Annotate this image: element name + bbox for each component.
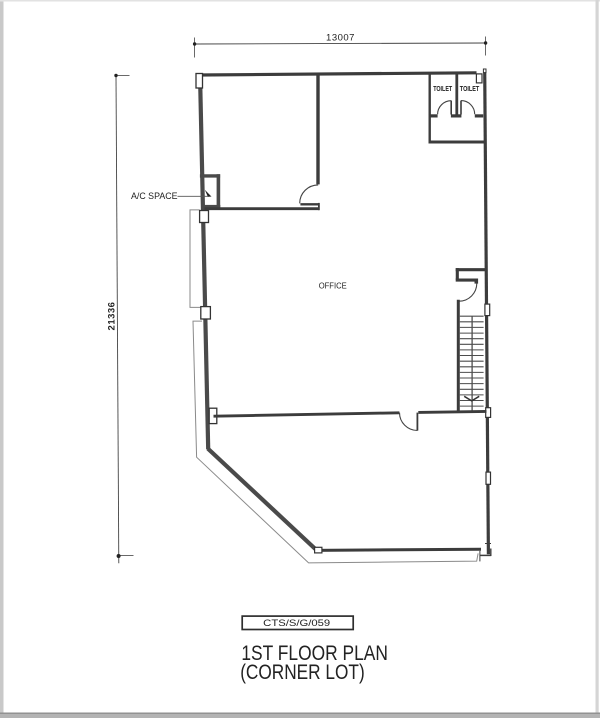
svg-text:A/C SPACE: A/C SPACE — [131, 191, 178, 202]
svg-text:TOILET: TOILET — [433, 86, 453, 93]
svg-text:CTS/S/G/059: CTS/S/G/059 — [263, 618, 330, 628]
svg-text:13007: 13007 — [326, 33, 355, 44]
svg-text:21336: 21336 — [107, 302, 118, 331]
svg-text:OFFICE: OFFICE — [319, 282, 347, 291]
svg-text:TOILET: TOILET — [460, 86, 480, 93]
svg-text:(CORNER LOT): (CORNER LOT) — [240, 661, 365, 684]
